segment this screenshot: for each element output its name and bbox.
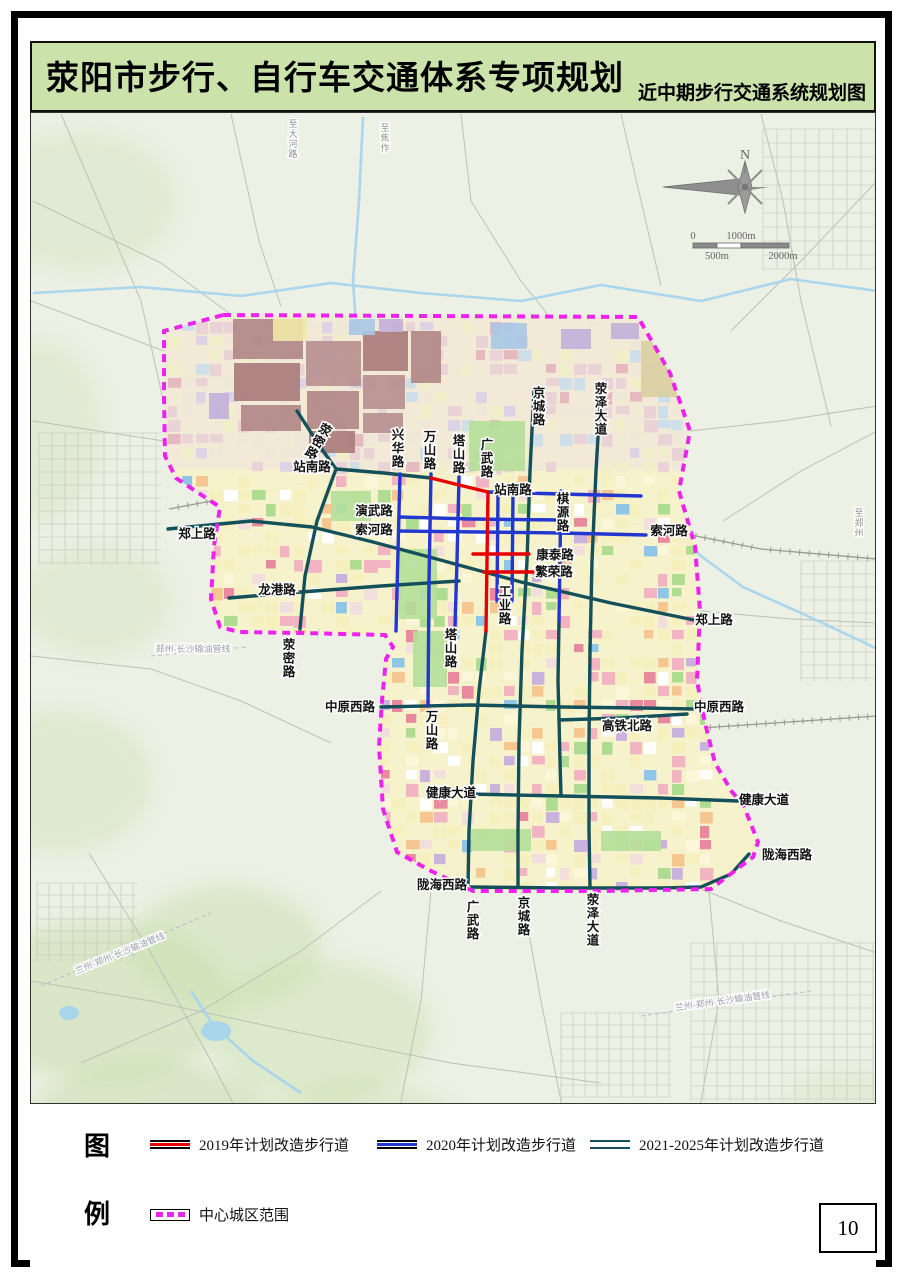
legend-label: 2021-2025年计划改造步行道	[639, 1134, 824, 1155]
road-label: 塔山路	[453, 433, 466, 475]
road-label: 工业路	[499, 585, 512, 626]
page-number-box: 10	[819, 1203, 877, 1253]
svg-text:广武路: 广武路	[481, 437, 494, 479]
svg-text:繁荣路: 繁荣路	[535, 564, 573, 579]
road-label: 广武路	[467, 899, 480, 941]
legend-label: 2020年计划改造步行道	[426, 1134, 576, 1155]
plan-sheet: 荥阳市步行、自行车交通体系专项规划 近中期步行交通系统规划图 荥密路兴华路万山路…	[0, 0, 905, 1280]
svg-text:中原西路: 中原西路	[694, 699, 745, 714]
road-label: 塔山路	[445, 627, 458, 669]
svg-text:荥密路: 荥密路	[282, 637, 296, 679]
svg-text:健康大道: 健康大道	[426, 785, 477, 800]
svg-text:站南路: 站南路	[494, 482, 532, 497]
scale-label: 1000m	[726, 231, 755, 242]
page-subtitle: 近中期步行交通系统规划图	[638, 78, 866, 105]
road-广武路	[486, 492, 488, 631]
legend-label: 中心城区范围	[199, 1204, 289, 1225]
svg-text:陇海西路: 陇海西路	[762, 847, 813, 862]
svg-text:郑上路: 郑上路	[695, 612, 733, 627]
svg-text:龙港路: 龙港路	[257, 582, 296, 597]
svg-text:至焦作: 至焦作	[380, 123, 389, 153]
road-label: 高铁北路	[602, 718, 653, 733]
svg-text:中原西路: 中原西路	[325, 699, 376, 714]
legend-swatch-boundary	[150, 1209, 190, 1221]
road-label: 京城路	[518, 895, 531, 937]
road-label: 兴华路	[392, 427, 405, 469]
road-支路二	[512, 493, 513, 601]
svg-text:荥泽大道: 荥泽大道	[587, 892, 600, 948]
legend-panel: 图 例 2019年计划改造步行道2020年计划改造步行道2021-2025年计划…	[30, 1104, 876, 1267]
svg-text:兴华路: 兴华路	[392, 427, 405, 469]
road-label: 郑州-长沙输油管线	[156, 643, 231, 654]
road-label: 荥泽大道	[587, 892, 600, 948]
road-label: 中原西路	[325, 699, 376, 714]
road-label: 至大河路	[288, 119, 297, 159]
road-label: 棋源路	[556, 491, 570, 533]
legend-swatch-y2020	[377, 1140, 417, 1149]
legend-item-y2019: 2019年计划改造步行道	[150, 1134, 349, 1155]
road-label: 索河路	[355, 522, 393, 537]
scale-label: 0	[690, 231, 695, 242]
legend-char-li: 例	[84, 1194, 110, 1231]
svg-text:索河路: 索河路	[355, 522, 393, 537]
page-number: 10	[838, 1216, 859, 1241]
svg-text:高铁北路: 高铁北路	[602, 718, 653, 733]
road-label: 龙港路	[257, 582, 296, 597]
svg-text:郑州-长沙输油管线: 郑州-长沙输油管线	[156, 643, 231, 654]
north-label: N	[740, 148, 750, 163]
legend-item-boundary: 中心城区范围	[150, 1204, 289, 1225]
svg-text:站南路: 站南路	[293, 459, 331, 474]
svg-text:陇海西路: 陇海西路	[417, 877, 468, 892]
page-title: 荥阳市步行、自行车交通体系专项规划	[46, 51, 624, 99]
road-label: 陇海西路	[762, 847, 813, 862]
road-label: 康泰路	[536, 547, 574, 562]
legend-item-y2021: 2021-2025年计划改造步行道	[590, 1134, 824, 1155]
road-label: 郑上路	[695, 612, 733, 627]
map-viewport: 荥密路兴华路万山路塔山路广武路京城路荥泽大道站南路站南路演武路索河路棋源路康泰路…	[30, 112, 876, 1104]
road-label: 郑上路	[178, 526, 216, 541]
legend-swatch-y2019	[150, 1140, 190, 1149]
svg-text:荥泽大道: 荥泽大道	[595, 381, 608, 437]
svg-text:广武路: 广武路	[467, 899, 480, 941]
legend-char-tu: 图	[84, 1126, 110, 1163]
scale-label: 2000m	[768, 251, 797, 262]
road-label: 荥密路	[282, 637, 296, 679]
svg-text:万山路: 万山路	[423, 430, 437, 471]
svg-text:塔山路: 塔山路	[445, 627, 458, 669]
road-label: 广武路	[481, 437, 494, 479]
title-bar: 荥阳市步行、自行车交通体系专项规划 近中期步行交通系统规划图	[30, 41, 876, 112]
svg-text:棋源路: 棋源路	[556, 491, 570, 533]
legend-swatch-y2021	[590, 1140, 630, 1149]
svg-text:索河路: 索河路	[650, 523, 688, 538]
map-canvas: 荥密路兴华路万山路塔山路广武路京城路荥泽大道站南路站南路演武路索河路棋源路康泰路…	[31, 113, 876, 1104]
road-label: 中原西路	[694, 699, 745, 714]
road-label: 站南路	[293, 459, 331, 474]
road-label: 健康大道	[739, 792, 790, 807]
svg-text:万山路: 万山路	[425, 710, 439, 751]
road-label: 繁荣路	[535, 564, 573, 579]
road-label: 至焦作	[380, 123, 389, 153]
svg-text:塔山路: 塔山路	[453, 433, 466, 475]
svg-text:郑上路: 郑上路	[178, 526, 216, 541]
road-label: 至郑州	[854, 508, 863, 538]
road-label: 万山路	[423, 430, 437, 471]
svg-text:演武路: 演武路	[355, 503, 393, 518]
svg-text:至郑州: 至郑州	[854, 508, 863, 538]
road-label: 陇海西路	[417, 877, 468, 892]
road-label: 演武路	[355, 503, 393, 518]
road-label: 荥泽大道	[595, 381, 608, 437]
svg-text:工业路: 工业路	[499, 585, 512, 626]
scale-label: 500m	[705, 251, 729, 262]
road-label: 万山路	[425, 710, 439, 751]
road-label: 索河路	[650, 523, 688, 538]
road-label: 站南路	[494, 482, 532, 497]
svg-text:至大河路: 至大河路	[288, 119, 297, 159]
road-label: 京城路	[533, 385, 546, 427]
svg-text:健康大道: 健康大道	[739, 792, 790, 807]
svg-text:康泰路: 康泰路	[536, 547, 574, 562]
svg-text:京城路: 京城路	[533, 385, 546, 427]
road-label: 健康大道	[426, 785, 477, 800]
legend-item-y2020: 2020年计划改造步行道	[377, 1134, 576, 1155]
legend-label: 2019年计划改造步行道	[199, 1134, 349, 1155]
svg-text:京城路: 京城路	[518, 895, 531, 937]
